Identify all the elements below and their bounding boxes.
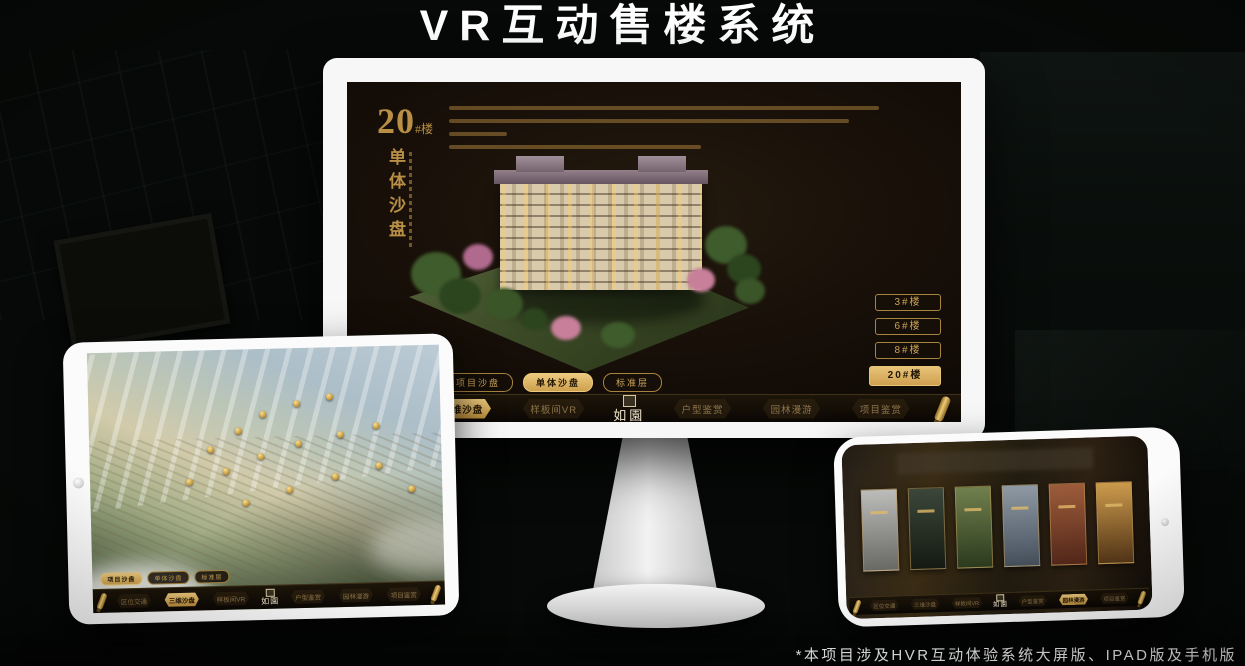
footnote-text: *本项目涉及HVR互动体验系统大屏版、IPAD版及手机版 [796,644,1237,665]
nav-item-location[interactable]: 区位交通 [115,593,153,608]
scene-card[interactable] [1001,484,1040,567]
tree [521,308,547,330]
tree [439,278,481,314]
floor-button-3[interactable]: 3#楼 [875,294,941,311]
nav-item-showroom-vr[interactable]: 样板间VR [211,591,252,606]
scene-card[interactable] [1048,483,1087,566]
tree [485,288,523,320]
ipad-camera-icon [73,477,84,488]
nav-item-garden-tour[interactable]: 园林漫游 [760,399,824,419]
nav-item-location[interactable]: 区位交通 [868,599,900,611]
tree [601,322,635,348]
nav-item-project-view[interactable]: 项目鉴赏 [385,587,423,602]
nav-item-floorplan[interactable]: 户型鉴赏 [1017,595,1049,607]
nav-item-floorplan[interactable]: 户型鉴赏 [289,589,327,604]
page-title: VR互动售楼系统 [0,0,1245,52]
subtab-single-sandtable[interactable]: 单体沙盘 [523,373,593,392]
nav-item-project-view[interactable]: 项目鉴赏 [1098,592,1130,604]
seal-icon [623,395,636,407]
phone-camera-icon [1161,518,1169,526]
building-3d-render[interactable] [405,160,775,372]
roof-cap [638,156,686,172]
scroll-icon[interactable] [852,599,862,614]
brand-logo-text: 如園 [613,409,645,422]
nav-item-floorplan[interactable]: 户型鉴赏 [670,399,734,419]
ipad-screen: 项目沙盘 单体沙盘 标准层 区位交通 三维沙盘 样板间VR 如園 户型鉴赏 园林… [87,345,445,614]
brand-logo: 如園 [261,589,279,606]
subtab-standard-floor[interactable]: 标准层 [603,373,662,392]
blossom-tree [463,244,493,270]
brand-logo: 如園 [993,594,1008,609]
phone-device: 区位交通 三维沙盘 样板间VR 如園 户型鉴赏 园林漫游 项目鉴赏 [833,427,1185,628]
building-number: 20 [377,101,415,141]
sandtable-subtabs: 项目沙盘 单体沙盘 标准层 [443,373,662,392]
floor-button-20-active[interactable]: 20#楼 [869,366,941,386]
building-model [500,182,702,290]
subtab-project-sandtable[interactable]: 项目沙盘 [100,572,142,586]
interior-beam [897,448,1093,475]
nav-item-showroom-vr[interactable]: 样板间VR [950,597,984,609]
scene-card[interactable] [1095,481,1134,564]
subtab-standard-floor[interactable]: 标准层 [194,570,229,584]
scroll-icon[interactable] [1137,590,1147,605]
ipad-device: 项目沙盘 单体沙盘 标准层 区位交通 三维沙盘 样板间VR 如園 户型鉴赏 园林… [63,333,460,624]
blossom-tree [551,316,581,340]
building-headline: 20#楼 [377,100,433,142]
scroll-icon[interactable] [430,584,442,602]
floor-button-8[interactable]: 8#楼 [875,342,941,359]
scene-card[interactable] [907,487,946,570]
seal-icon [265,589,274,597]
monitor-stand-neck [588,436,722,588]
scroll-icon[interactable] [933,395,951,422]
scene-card[interactable] [860,489,899,572]
floor-button-group: 3#楼 6#楼 8#楼 20#楼 [863,294,941,393]
promo-poster: VR互动售楼系统 20#楼 单体沙盘 [0,0,1245,666]
nav-item-3d-sandtable[interactable]: 三维沙盘 [909,598,941,610]
brand-logo-text: 如園 [261,598,279,606]
scroll-icon[interactable] [96,592,108,610]
phone-bottom-navbar: 区位交通 三维沙盘 样板间VR 如園 户型鉴赏 园林漫游 项目鉴赏 [849,588,1149,615]
scene-card-gallery [843,481,1151,573]
phone-screen: 区位交通 三维沙盘 样板间VR 如園 户型鉴赏 园林漫游 项目鉴赏 [841,436,1152,620]
nav-item-project-view[interactable]: 项目鉴赏 [849,399,913,419]
brand-logo: 如園 [613,395,645,422]
building-roof [494,170,708,184]
nav-item-showroom-vr[interactable]: 样板间VR [519,399,588,419]
tree [735,278,765,304]
brand-logo-text: 如園 [993,602,1008,609]
floor-button-6[interactable]: 6#楼 [875,318,941,335]
description-text [449,106,919,158]
nav-item-3d-sandtable[interactable]: 三维沙盘 [163,592,201,607]
blossom-tree [687,268,715,292]
subtab-single-sandtable[interactable]: 单体沙盘 [147,571,189,585]
building-number-suffix: #楼 [415,122,433,136]
monitor-stand-base [547,584,765,628]
nav-item-garden-tour[interactable]: 园林漫游 [1057,594,1089,606]
nav-item-garden-tour[interactable]: 园林漫游 [337,588,375,603]
scene-card[interactable] [954,486,993,569]
roof-cap [516,156,564,172]
